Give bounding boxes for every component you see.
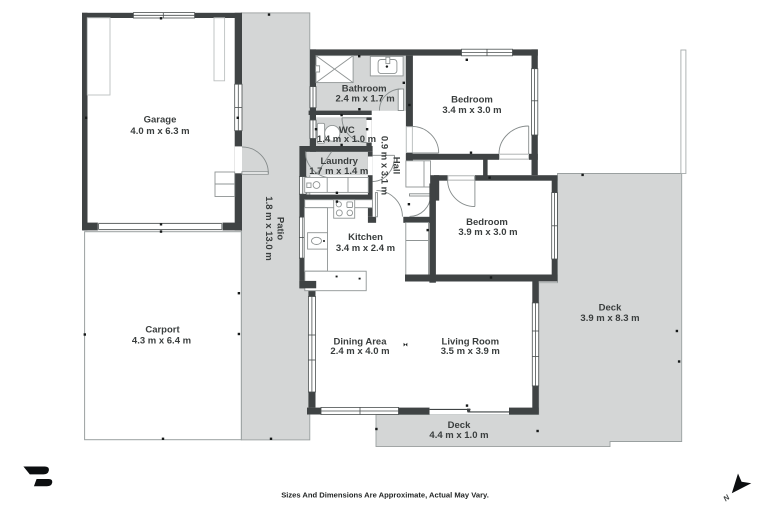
svg-text:3.5 m x 3.9 m: 3.5 m x 3.9 m [441,346,500,357]
svg-text:1.7 m x 1.4 m: 1.7 m x 1.4 m [309,166,368,177]
svg-text:Kitchen: Kitchen [348,232,383,243]
svg-text:Garage: Garage [144,115,177,126]
svg-text:3.9 m x 3.0 m: 3.9 m x 3.0 m [458,227,517,238]
svg-text:1.4 m x 1.0 m: 1.4 m x 1.0 m [317,134,376,145]
svg-text:3.4 m x 3.0 m: 3.4 m x 3.0 m [442,105,501,116]
svg-text:3.9 m x 8.3 m: 3.9 m x 8.3 m [580,313,639,324]
svg-text:2.4 m x 1.7 m: 2.4 m x 1.7 m [336,94,395,105]
svg-text:4.4 m x 1.0 m: 4.4 m x 1.0 m [429,430,488,441]
svg-text:4.0 m x 6.3 m: 4.0 m x 6.3 m [130,126,189,137]
svg-text:Carport: Carport [145,324,180,335]
svg-text:3.4 m x 2.4 m: 3.4 m x 2.4 m [336,243,395,254]
svg-text:Deck: Deck [599,302,622,313]
svg-text:2.4 m x 4.0 m: 2.4 m x 4.0 m [330,346,389,357]
svg-text:4.3 m x 6.4 m: 4.3 m x 6.4 m [132,335,191,346]
svg-text:Sizes And Dimensions Are Appro: Sizes And Dimensions Are Approximate, Ac… [281,491,489,500]
